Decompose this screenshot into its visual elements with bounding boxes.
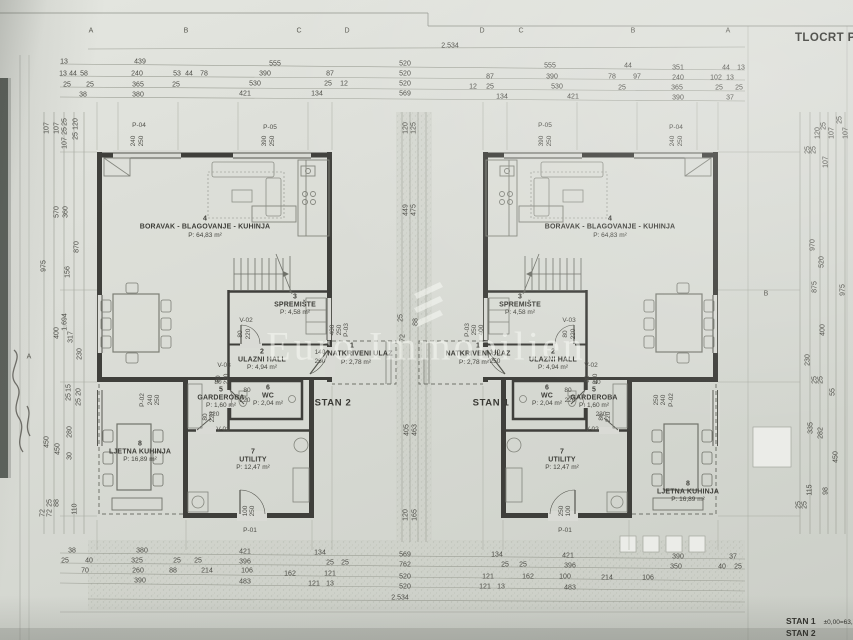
dim-label: 25 — [715, 85, 723, 92]
dim-label: 25 — [62, 127, 69, 135]
dim-label: 165 — [412, 509, 419, 521]
dim-label: 15 — [66, 384, 73, 392]
unit-label: STAN 1 — [473, 398, 510, 408]
opening-tag: 220 — [606, 412, 613, 423]
dim-label: 78 — [608, 74, 616, 81]
dim-label: 421 — [239, 549, 251, 556]
opening-tag: 240 — [670, 136, 677, 147]
dim-label: 25 — [61, 558, 69, 565]
room-number: 8 — [686, 481, 690, 488]
opening-tag: 250 — [155, 395, 162, 406]
opening-tag: 220 — [565, 398, 576, 405]
opening-tag: 220 — [224, 374, 231, 385]
opening-tag: 250 — [547, 136, 554, 147]
room-area-label: P: 1,60 m² — [579, 403, 609, 410]
opening-tag: 80 — [214, 380, 221, 387]
dim-label: 396 — [239, 559, 251, 566]
labels-layer: 4BORAVAK - BLAGOVANJE - KUHINJAP: 64,83 … — [0, 0, 853, 640]
scanned-floor-plan: 4BORAVAK - BLAGOVANJE - KUHINJAP: 64,83 … — [0, 0, 853, 640]
opening-tag: 80 — [593, 380, 600, 387]
dim-label: 13 — [726, 75, 734, 82]
room-number: 6 — [545, 385, 549, 392]
dim-label: 121 — [479, 584, 491, 591]
dim-label: 110 — [72, 503, 79, 514]
opening-tag: V-02 — [585, 427, 598, 434]
room-number: 5 — [592, 387, 596, 394]
room-area-label: P: 4,58 m² — [505, 310, 535, 317]
dim-label: 20 — [76, 388, 83, 396]
dim-label: 53 — [173, 71, 181, 78]
opening-tag: P-01 — [243, 528, 257, 535]
dim-label: 282 — [818, 427, 825, 439]
dim-label: 44 — [624, 63, 632, 70]
dim-label: 870 — [74, 241, 81, 253]
dim-label: 463 — [412, 424, 419, 436]
opening-tag: 80 — [243, 388, 250, 395]
axis-letter: A — [726, 28, 731, 35]
dim-label: 25 — [618, 85, 626, 92]
dim-label: 156 — [65, 266, 72, 278]
axis-letter: B — [764, 291, 769, 298]
dim-label: 875 — [812, 281, 819, 293]
dim-label: 520 — [399, 584, 411, 591]
dim-label: 25 — [501, 562, 509, 569]
room-name-label: UTILITY — [548, 457, 576, 464]
dim-label: 72 — [40, 509, 47, 517]
dim-label: 2.534 — [391, 595, 409, 602]
room-number: 4 — [608, 216, 612, 223]
stan2-label: STAN 2 — [786, 628, 816, 638]
dim-label: 350 — [670, 564, 682, 571]
dim-label: 25 — [173, 558, 181, 565]
opening-tag: 250 — [139, 136, 146, 147]
dim-label: 396 — [564, 563, 576, 570]
stan1-label: STAN 1 — [786, 616, 816, 626]
dim-label: 25 — [818, 376, 825, 384]
dim-label: 400 — [820, 324, 827, 336]
dim-label: 240 — [131, 71, 143, 78]
room-number: 2 — [260, 349, 264, 356]
axis-letter: B — [631, 28, 636, 35]
dim-label: 121 — [324, 571, 336, 578]
opening-tag: 390 — [539, 136, 546, 147]
room-number: 3 — [518, 294, 522, 301]
dim-label: 25 — [62, 118, 69, 126]
dim-label: 120 — [403, 122, 410, 134]
room-area-label: P: 4,58 m² — [280, 310, 310, 317]
opening-tag: 80 — [238, 330, 245, 337]
dim-label: 520 — [819, 256, 826, 268]
dim-label: 12 — [469, 84, 477, 91]
dim-label: 520 — [399, 71, 411, 78]
watermark-text: Euro Immobilien — [266, 323, 585, 370]
dim-label: 555 — [544, 63, 556, 70]
dim-label: 121 — [482, 574, 494, 581]
dim-label: 125 — [411, 122, 418, 134]
dim-label: 214 — [601, 575, 613, 582]
room-number: 5 — [219, 387, 223, 394]
dim-label: 25 — [341, 560, 349, 567]
dim-label: 25 — [73, 132, 80, 140]
dim-label: 449 — [403, 204, 410, 216]
dim-label: 107 — [62, 137, 69, 149]
room-number: 7 — [251, 449, 255, 456]
dim-label: 107 — [829, 127, 836, 139]
opening-tag: P-05 — [538, 123, 552, 130]
dim-label: 25 — [86, 82, 94, 89]
dim-label: 390 — [672, 554, 684, 561]
opening-tag: 390 — [262, 136, 269, 147]
dim-label: 25 — [837, 116, 844, 124]
dim-label: 25 — [66, 393, 73, 401]
dim-label: 44 — [722, 65, 730, 72]
room-name-label: BORAVAK - BLAGOVANJE - KUHINJA — [140, 224, 271, 231]
room-name-label: SPREMIŠTE — [499, 302, 541, 309]
opening-tag: 240 — [131, 136, 138, 147]
dim-label: 421 — [239, 91, 251, 98]
dim-label: 569 — [399, 91, 411, 98]
dim-label: 475 — [411, 204, 418, 216]
dim-label: 25 — [326, 560, 334, 567]
opening-tag: 220 — [210, 412, 217, 423]
dim-label: 25 — [63, 82, 71, 89]
opening-tag: 100 — [566, 506, 573, 517]
dim-label: 214 — [201, 568, 213, 575]
room-name-label: GARDEROBA — [570, 395, 617, 402]
dim-label: 520 — [399, 81, 411, 88]
dim-label: 106 — [241, 568, 253, 575]
dim-label: 530 — [249, 81, 261, 88]
dim-label: 25 — [735, 85, 743, 92]
opening-tag: 220 — [246, 329, 253, 340]
dim-label: 975 — [840, 284, 847, 296]
dim-label: 230 — [805, 354, 812, 366]
dim-label: 530 — [551, 84, 563, 91]
dim-label: 25 — [821, 122, 828, 130]
dim-label: 13 — [497, 584, 505, 591]
opening-tag: V-02 — [584, 363, 597, 370]
dim-label: 317 — [68, 331, 75, 343]
dim-label: 88 — [169, 568, 177, 575]
dim-label: 25 — [76, 398, 83, 406]
dim-label: 570 — [54, 206, 61, 218]
dim-label: 134 — [496, 94, 508, 101]
dim-label: 134 — [314, 550, 326, 557]
dim-label: 134 — [311, 91, 323, 98]
opening-tag: P-02 — [140, 393, 147, 407]
dim-label: 25 — [47, 499, 54, 507]
dim-label: 107 — [54, 122, 61, 134]
dim-label: 520 — [399, 574, 411, 581]
dim-label: 25 — [194, 558, 202, 565]
dim-label: 421 — [562, 553, 574, 560]
opening-tag: V-03 — [217, 363, 230, 370]
dim-label: 390 — [259, 71, 271, 78]
dim-label: 162 — [522, 574, 534, 581]
dim-label: 121 — [308, 581, 320, 588]
room-number: 4 — [203, 216, 207, 223]
unit-label: STAN 2 — [315, 398, 352, 408]
room-area-label: P: 64,83 m² — [188, 233, 222, 240]
opening-tag: 250 — [250, 506, 257, 517]
dim-label: 87 — [326, 71, 334, 78]
stan1-level: ±0,00=63,75 m — [824, 619, 853, 626]
room-area-label: P: 12,47 m² — [545, 465, 579, 472]
dim-label: 483 — [239, 579, 251, 586]
dim-label: 975 — [41, 260, 48, 272]
opening-tag: 250 — [559, 506, 566, 517]
axis-letter: A — [27, 354, 32, 361]
dim-label: 44 — [69, 71, 77, 78]
dim-label: 30 — [67, 452, 74, 460]
axis-letter: A — [89, 28, 94, 35]
dim-label: 450 — [833, 451, 840, 463]
dim-label: 365 — [671, 85, 683, 92]
opening-tag: 250 — [678, 136, 685, 147]
dim-label: 37 — [729, 554, 737, 561]
room-area-label: P: 1,60 m² — [206, 403, 236, 410]
dim-label: 107 — [843, 127, 850, 139]
dim-label: 98 — [823, 487, 830, 495]
dim-label: 102 — [710, 75, 722, 82]
dim-label: 13 — [59, 71, 67, 78]
dim-label: 555 — [269, 61, 281, 68]
dim-label: 483 — [564, 585, 576, 592]
dim-label: 106 — [642, 575, 654, 582]
axis-letter: C — [296, 28, 301, 35]
opening-tag: P-04 — [669, 125, 683, 132]
dim-label: 360 — [63, 206, 70, 218]
opening-tag: P-04 — [132, 123, 146, 130]
dim-label: 380 — [132, 92, 144, 99]
dim-label: 78 — [200, 71, 208, 78]
dim-label: 38 — [79, 92, 87, 99]
room-name-label: LJETNA KUHINJA — [657, 489, 719, 496]
room-name-label: UTILITY — [239, 457, 267, 464]
dim-label: 38 — [68, 548, 76, 555]
axis-letter: D — [344, 28, 349, 35]
dim-label: 25 — [398, 314, 405, 322]
opening-tag: 250 — [270, 136, 277, 147]
dim-label: 365 — [132, 82, 144, 89]
room-number: 7 — [560, 449, 564, 456]
dim-label: 40 — [85, 558, 93, 565]
dim-label: 58 — [80, 71, 88, 78]
room-name-label: WC — [262, 393, 274, 400]
dim-label: 520 — [399, 61, 411, 68]
opening-tag: 80 — [564, 388, 571, 395]
room-number: 3 — [293, 294, 297, 301]
dim-label: 55 — [830, 388, 837, 396]
room-area-label: P: 64,83 m² — [593, 233, 627, 240]
opening-tag: P-05 — [263, 125, 277, 132]
room-area-label: P: 16,89 m² — [671, 497, 705, 504]
room-name-label: LJETNA KUHINJA — [109, 449, 171, 456]
opening-tag: V-03 — [216, 427, 229, 434]
dim-label: 13 — [60, 59, 68, 66]
axis-letter: D — [479, 28, 484, 35]
dim-label: 120 — [73, 118, 80, 130]
dim-label: 13 — [326, 581, 334, 588]
dim-label: 107 — [823, 156, 830, 168]
room-area-label: P: 2,04 m² — [253, 401, 283, 408]
dim-label: 280 — [67, 426, 74, 438]
dim-label: 325 — [131, 558, 143, 565]
dim-label: 450 — [55, 443, 62, 455]
dim-label: 2.534 — [441, 43, 459, 50]
dim-label: 390 — [546, 74, 558, 81]
dim-label: 569 — [399, 552, 411, 559]
dim-label: 87 — [486, 74, 494, 81]
dim-label: 13 — [737, 65, 745, 72]
opening-tag: P-02 — [669, 393, 676, 407]
room-name-label: WC — [541, 393, 553, 400]
room-name-label: BORAVAK - BLAGOVANJE - KUHINJA — [545, 224, 676, 231]
dim-label: 162 — [284, 571, 296, 578]
opening-tag: P-01 — [558, 528, 572, 535]
dim-label: 240 — [672, 75, 684, 82]
room-name-label: GARDEROBA — [197, 395, 244, 402]
dim-label: 40 — [718, 564, 726, 571]
dim-label: 25 — [802, 501, 809, 509]
dim-label: 97 — [633, 74, 641, 81]
dim-label: 25 — [172, 82, 180, 89]
dim-label: 25 — [811, 146, 818, 154]
dim-label: 70 — [81, 568, 89, 575]
opening-tag: V-02 — [239, 318, 252, 325]
dim-label: 72 — [47, 509, 54, 517]
dim-label: 134 — [491, 552, 503, 559]
opening-tag: 220 — [240, 398, 251, 405]
dim-label: 115 — [807, 484, 814, 495]
axis-letter: B — [184, 28, 189, 35]
dim-label: 37 — [726, 95, 734, 102]
room-area-label: P: 12,47 m² — [236, 465, 270, 472]
dim-label: 335 — [808, 422, 815, 434]
dim-label: 25 — [519, 562, 527, 569]
room-area-label: P: 16,89 m² — [123, 457, 157, 464]
dim-label: 120 — [403, 509, 410, 521]
dim-label: 390 — [672, 95, 684, 102]
dim-label: 351 — [672, 65, 684, 72]
drawing-title: TLOCRT PR — [795, 32, 853, 44]
opening-tag: 250 — [654, 395, 661, 406]
dim-label: 12 — [340, 81, 348, 88]
room-number: 8 — [138, 441, 142, 448]
opening-tag: 240 — [661, 395, 668, 406]
room-number: 6 — [266, 385, 270, 392]
dim-label: 230 — [77, 348, 84, 360]
dim-label: 107 — [44, 122, 51, 134]
dim-label: 260 — [132, 568, 144, 575]
dim-label: 100 — [559, 574, 571, 581]
dim-label: 25 — [734, 564, 742, 571]
level-annotation-block: STAN 1 ±0,00=63,75 m STAN 2 — [786, 616, 853, 640]
room-name-label: SPREMIŠTE — [274, 302, 316, 309]
dim-label: 380 — [136, 548, 148, 555]
dim-label: 1.694 — [62, 313, 69, 331]
dim-label: 44 — [185, 71, 193, 78]
dim-label: 970 — [810, 239, 817, 251]
dim-label: 439 — [134, 59, 146, 66]
dim-label: 25 — [486, 84, 494, 91]
dim-label: 25 — [324, 81, 332, 88]
dim-label: 390 — [134, 578, 146, 585]
dim-label: 762 — [399, 562, 411, 569]
room-area-label: P: 2,04 m² — [532, 401, 562, 408]
dim-label: 405 — [404, 424, 411, 436]
dim-label: 421 — [567, 94, 579, 101]
opening-tag: 80 — [585, 375, 592, 382]
dim-label: 88 — [54, 499, 61, 507]
dim-label: 450 — [44, 436, 51, 448]
dim-label: 400 — [54, 327, 61, 339]
axis-letter: C — [518, 28, 523, 35]
